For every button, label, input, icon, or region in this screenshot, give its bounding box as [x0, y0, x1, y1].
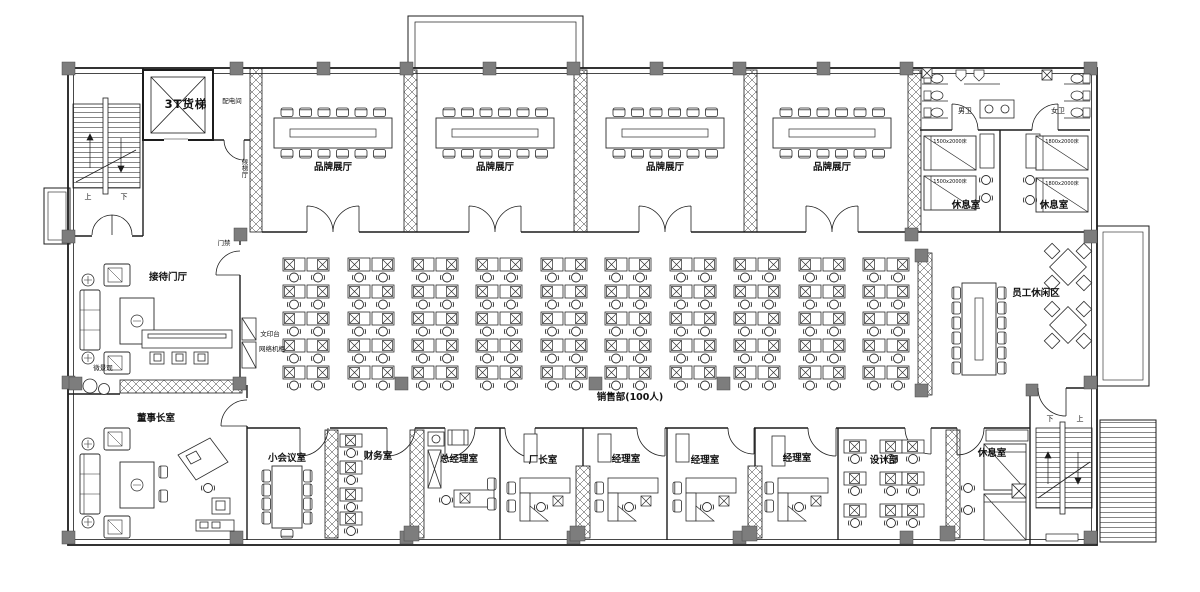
- label-leisure-area: 员工休闲区: [1012, 287, 1060, 299]
- label-power-room: 配电间: [222, 96, 242, 105]
- label-print-station: 文印台: [260, 329, 280, 338]
- label-stair-down-tl: 下: [121, 193, 128, 201]
- restroom-topleft-furniture: [924, 134, 994, 210]
- sales-workstations: [283, 258, 909, 390]
- reception-furniture: [80, 264, 256, 395]
- chairman-furniture: [80, 428, 234, 538]
- label-bed-1800-a: 1800x2000床: [1045, 138, 1078, 145]
- label-restroom-2: 休息室: [1039, 199, 1069, 211]
- label-manager-1: 经理室: [612, 453, 641, 465]
- label-restroom-3: 休息室: [977, 447, 1007, 459]
- label-mens-wc: 男卫: [958, 107, 972, 115]
- manager3-furniture: [765, 436, 828, 521]
- label-bed-1800-b: 1800x2000床: [1045, 180, 1078, 187]
- label-micro-landscape: 微景观: [93, 363, 113, 372]
- label-reception-hall: 接待门厅: [149, 271, 188, 283]
- manager2-furniture: [673, 434, 736, 521]
- entrance-canopy: [408, 16, 583, 68]
- gm-furniture: [428, 430, 496, 510]
- right-terrace: [1097, 226, 1149, 386]
- label-sales-dept: 销售部(100人): [597, 391, 664, 403]
- label-manager-3: 经理室: [783, 452, 812, 464]
- restroom-bottom-furniture: [962, 430, 1029, 540]
- label-stair-down-br: 下: [1047, 415, 1054, 423]
- label-showroom-3: 品牌展厅: [646, 161, 685, 173]
- label-showroom-4: 品牌展厅: [813, 161, 852, 173]
- label-showroom-1: 品牌展厅: [314, 161, 353, 173]
- finance-furniture: [340, 434, 362, 536]
- leisure-furniture: [952, 227, 1108, 375]
- label-access-control: 门禁: [218, 238, 232, 247]
- label-chairman-office: 董事长室: [137, 412, 176, 424]
- label-factory-director: 厂长室: [529, 454, 558, 466]
- label-freight-elevator: 3T货梯: [165, 97, 208, 111]
- manager1-furniture: [595, 434, 658, 521]
- stairwell-top-left: [73, 98, 140, 194]
- label-small-meeting: 小会议室: [267, 452, 307, 464]
- label-network-cabinet: 网络机柜: [259, 344, 286, 353]
- floor-plan-page: 3T货梯 配电间 候梯厅 品牌展厅 品牌展厅 品牌展厅 品牌展厅 男卫 女卫 休…: [0, 0, 1200, 592]
- label-restroom-1: 休息室: [951, 199, 981, 211]
- label-gm-office: 总经理室: [440, 453, 479, 465]
- label-stair-up-br: 上: [1077, 414, 1084, 423]
- factory-director-furniture: [507, 434, 570, 521]
- exterior-stair: [1100, 420, 1156, 542]
- meeting-room-furniture: [262, 466, 312, 538]
- stairwell-bottom-right: [1036, 422, 1092, 541]
- floor-plan-canvas: 3T货梯 配电间 候梯厅 品牌展厅 品牌展厅 品牌展厅 品牌展厅 男卫 女卫 休…: [0, 0, 1200, 592]
- label-design-dept: 设计部: [870, 454, 899, 466]
- label-manager-2: 经理室: [691, 454, 720, 466]
- label-elevator-lobby: 候梯厅: [240, 157, 248, 178]
- label-showroom-2: 品牌展厅: [476, 161, 515, 173]
- label-finance-office: 财务室: [363, 450, 393, 462]
- label-womens-wc: 女卫: [1051, 106, 1065, 115]
- label-stair-up-tl: 上: [85, 192, 92, 201]
- design-furniture: [844, 440, 924, 528]
- label-bed-1500-a: 1500x2000床: [933, 138, 966, 145]
- label-bed-1500-b: 1500x2000床: [933, 178, 966, 185]
